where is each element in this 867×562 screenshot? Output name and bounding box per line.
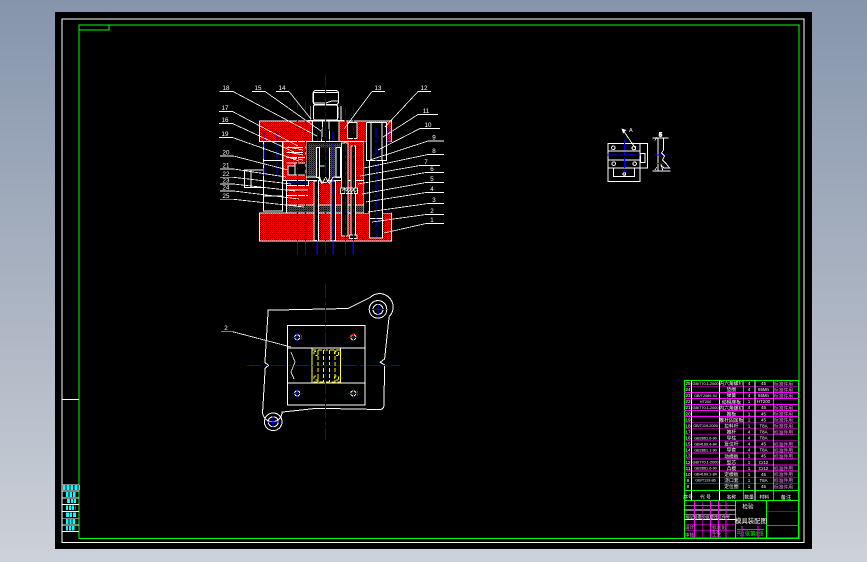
svg-text:23: 23: [685, 393, 691, 398]
svg-text:1: 1: [748, 417, 751, 422]
svg-text:4: 4: [748, 442, 751, 447]
svg-text:45: 45: [761, 484, 766, 489]
svg-text:3: 3: [432, 197, 436, 204]
svg-text:65Mn: 65Mn: [758, 393, 770, 398]
svg-text:1: 1: [748, 478, 751, 483]
svg-text:19: 19: [222, 131, 229, 138]
svg-text:标准件用: 标准件用: [774, 471, 793, 478]
svg-text:T8A: T8A: [759, 436, 767, 441]
svg-text:T8A: T8A: [759, 448, 767, 453]
svg-text:16: 16: [222, 117, 229, 124]
svg-text:GB2861.6-90: GB2861.6-90: [694, 436, 717, 440]
svg-text:18: 18: [223, 85, 230, 92]
svg-text:HT200: HT200: [757, 399, 771, 404]
svg-text:2: 2: [430, 208, 434, 215]
svg-text:备注: 备注: [781, 493, 791, 501]
svg-text:T8A: T8A: [759, 423, 767, 428]
svg-text:4: 4: [748, 381, 751, 386]
svg-text:GB/T70.1-2000: GB/T70.1-2000: [693, 461, 719, 465]
svg-text:45: 45: [761, 411, 766, 416]
svg-text:拉料杆: 拉料杆: [724, 423, 739, 430]
svg-text:共1张第1张: 共1张第1张: [736, 530, 764, 538]
svg-text:导柱: 导柱: [727, 435, 737, 442]
svg-text:15: 15: [255, 85, 262, 92]
svg-text:复位杆: 复位杆: [724, 441, 739, 448]
svg-text:45: 45: [761, 381, 766, 386]
svg-text:GB/T2089-94: GB/T2089-94: [694, 394, 717, 398]
svg-text:45: 45: [761, 442, 766, 447]
svg-text:4: 4: [748, 405, 751, 410]
svg-text:1: 1: [748, 454, 751, 459]
svg-text:45: 45: [761, 405, 766, 410]
svg-text:导套: 导套: [727, 447, 737, 454]
svg-text:1: 1: [748, 423, 751, 428]
svg-text:推杆固定板: 推杆固定板: [719, 417, 743, 424]
svg-text:12: 12: [685, 460, 691, 465]
svg-text:T8A: T8A: [759, 430, 767, 435]
svg-text:4: 4: [748, 430, 751, 435]
svg-text:13: 13: [375, 85, 382, 92]
svg-text:4: 4: [748, 448, 751, 453]
svg-text:45: 45: [761, 417, 766, 422]
svg-text:审核: 审核: [685, 531, 695, 538]
svg-text:代 号: 代 号: [700, 494, 711, 501]
svg-text:标准件用: 标准件用: [774, 441, 793, 448]
svg-text:1: 1: [748, 484, 751, 489]
svg-text:5: 5: [659, 133, 662, 139]
svg-text:HT200: HT200: [700, 400, 711, 404]
svg-text:垫圈: 垫圈: [727, 386, 737, 393]
svg-text:T8A: T8A: [759, 478, 767, 483]
svg-text:1: 1: [430, 217, 434, 224]
svg-text:9: 9: [432, 135, 436, 142]
svg-text:18: 18: [685, 423, 691, 428]
svg-text:设计: 设计: [685, 524, 695, 531]
svg-text:GB/T70.1-2000: GB/T70.1-2000: [693, 382, 719, 386]
svg-text:4: 4: [748, 436, 751, 441]
svg-text:GB/T119-2000: GB/T119-2000: [693, 424, 718, 428]
svg-text:14: 14: [279, 85, 286, 92]
svg-text:4: 4: [748, 393, 751, 398]
svg-text:GB/T119-86: GB/T119-86: [695, 479, 715, 483]
svg-text:12: 12: [421, 85, 428, 92]
svg-text:17: 17: [685, 430, 691, 435]
svg-text:定位圈: 定位圈: [724, 483, 739, 490]
svg-text:定模板: 定模板: [724, 471, 739, 478]
svg-text:标准件用: 标准件用: [774, 477, 793, 484]
svg-text:标准件用: 标准件用: [774, 447, 793, 454]
svg-text:23: 23: [223, 178, 230, 185]
svg-text:24: 24: [223, 185, 230, 192]
svg-text:推杆: 推杆: [727, 429, 737, 436]
svg-text:标记处数分区更改文件号: 标记处数分区更改文件号: [686, 514, 730, 520]
svg-text:标准件用: 标准件用: [774, 453, 793, 460]
svg-text:2: 2: [224, 325, 228, 332]
svg-text:标准件用: 标准件用: [774, 465, 793, 472]
svg-text:模具装配图: 模具装配图: [735, 516, 767, 525]
svg-text:GB2861.1-90: GB2861.1-90: [694, 448, 717, 452]
svg-text:25: 25: [223, 193, 230, 200]
svg-text:1: 1: [748, 460, 751, 465]
svg-text:10: 10: [425, 122, 432, 129]
svg-text:15: 15: [685, 442, 691, 447]
svg-text:24: 24: [685, 387, 691, 392]
svg-text:21: 21: [685, 405, 691, 410]
svg-text:1: 1: [748, 411, 751, 416]
svg-text:推板: 推板: [727, 410, 737, 417]
svg-text:19: 19: [685, 417, 691, 422]
svg-text:1: 1: [748, 472, 751, 477]
svg-text:17: 17: [222, 105, 229, 112]
svg-text:8: 8: [687, 484, 690, 489]
svg-text:名称: 名称: [727, 494, 737, 501]
svg-text:动模板: 动模板: [724, 453, 739, 460]
svg-text:13: 13: [685, 454, 691, 459]
svg-text:内六角螺钉: 内六角螺钉: [719, 404, 743, 411]
svg-text:动模座板: 动模座板: [722, 398, 741, 405]
svg-text:6: 6: [430, 166, 434, 173]
svg-text:批准: 批准: [712, 528, 720, 534]
svg-text:标准件用: 标准件用: [774, 392, 793, 399]
svg-text:45: 45: [761, 472, 766, 477]
svg-text:GB/T70.1-2000: GB/T70.1-2000: [693, 406, 719, 410]
svg-text:检验: 检验: [742, 503, 754, 511]
svg-text:11: 11: [686, 466, 691, 471]
svg-text:4: 4: [430, 186, 434, 193]
svg-text:20: 20: [685, 411, 691, 416]
svg-text:10: 10: [685, 472, 691, 477]
svg-text:A: A: [629, 128, 633, 134]
svg-text:内六角螺钉: 内六角螺钉: [719, 380, 743, 387]
svg-text:标准件用: 标准件用: [774, 405, 793, 412]
svg-text:标准件用: 标准件用: [774, 423, 793, 430]
svg-text:14: 14: [685, 448, 691, 453]
svg-text:凸模: 凸模: [727, 465, 737, 472]
svg-text:Cr12: Cr12: [759, 466, 769, 471]
svg-text:标准件用: 标准件用: [774, 483, 793, 490]
svg-text:序号: 序号: [683, 494, 693, 501]
svg-text:11: 11: [423, 108, 430, 115]
svg-text:数量: 数量: [744, 494, 754, 501]
svg-text:标准件用: 标准件用: [774, 429, 793, 436]
svg-text:标准件用: 标准件用: [774, 411, 793, 418]
svg-text:弹簧: 弹簧: [727, 392, 737, 399]
svg-text:4: 4: [748, 387, 751, 392]
svg-text:5: 5: [430, 176, 434, 183]
svg-text:标准件用: 标准件用: [774, 386, 793, 393]
svg-text:45: 45: [761, 454, 766, 459]
svg-text:材料: 材料: [759, 494, 769, 501]
svg-text:1: 1: [748, 399, 751, 404]
svg-text:7: 7: [424, 159, 428, 166]
svg-text:21: 21: [223, 163, 230, 170]
svg-text:GB4169.4-84: GB4169.4-84: [694, 442, 717, 446]
svg-text:16: 16: [685, 436, 691, 441]
svg-text:标准件用: 标准件用: [774, 417, 793, 424]
svg-text:1: 1: [748, 466, 751, 471]
svg-text:GB2861.6-90: GB2861.6-90: [694, 467, 717, 471]
svg-text:GB4169.1-84: GB4169.1-84: [694, 473, 717, 477]
svg-text:型芯: 型芯: [727, 459, 737, 466]
svg-text:20: 20: [223, 150, 230, 157]
svg-text:浇口套: 浇口套: [724, 477, 739, 484]
svg-text:9: 9: [687, 478, 690, 483]
svg-text:标准件用: 标准件用: [774, 380, 793, 387]
svg-text:8: 8: [432, 148, 436, 155]
svg-text:22: 22: [685, 399, 691, 404]
svg-text:25: 25: [685, 381, 691, 386]
svg-text:65Mn: 65Mn: [758, 387, 770, 392]
svg-text:Cr12: Cr12: [759, 460, 769, 465]
